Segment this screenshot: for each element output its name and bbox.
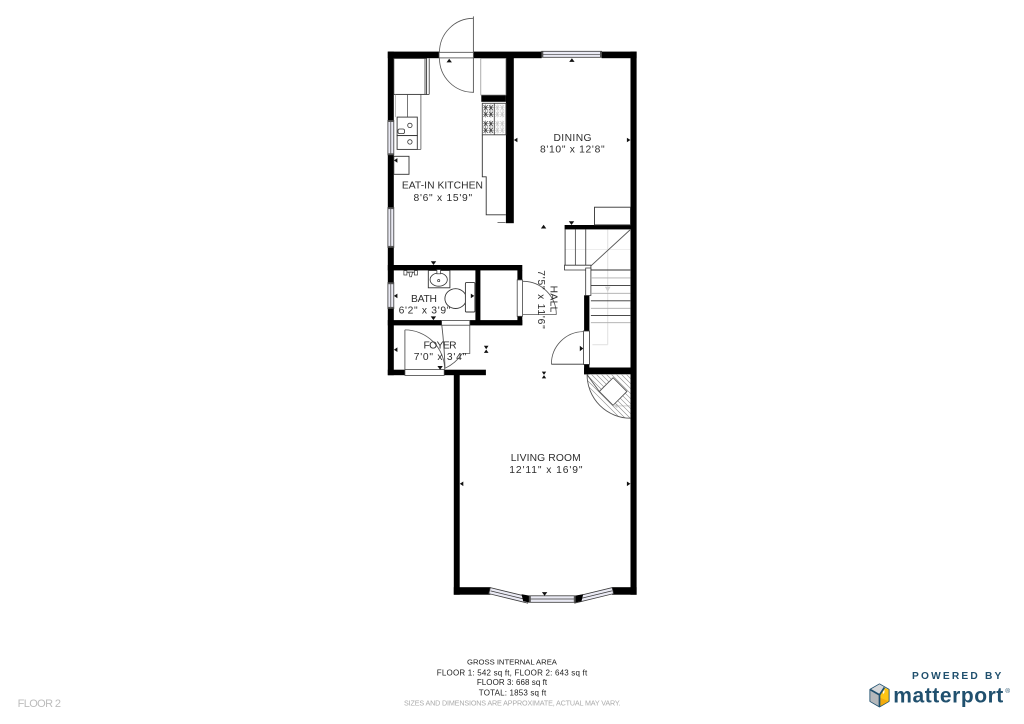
svg-text:GROSS INTERNAL AREA: GROSS INTERNAL AREA (467, 657, 558, 666)
svg-text:SIZES AND DIMENSIONS ARE APPRO: SIZES AND DIMENSIONS ARE APPROXIMATE, AC… (404, 699, 621, 708)
svg-text:FLOOR 2: FLOOR 2 (18, 698, 61, 710)
svg-text:7'5" x 11'6": 7'5" x 11'6" (535, 270, 546, 329)
svg-text:HALL: HALL (547, 286, 558, 313)
svg-text:FLOOR 1: 542 sq ft, FLOOR 2: 6: FLOOR 1: 542 sq ft, FLOOR 2: 643 sq ft (437, 668, 588, 677)
svg-text:EAT-IN KITCHEN: EAT-IN KITCHEN (402, 181, 483, 192)
svg-text:BATH: BATH (411, 294, 437, 305)
svg-text:FOYER: FOYER (423, 340, 456, 351)
svg-text:®: ® (1005, 687, 1010, 695)
svg-text:12'11" x 16'9": 12'11" x 16'9" (509, 465, 583, 476)
svg-text:7'0" x 3'4": 7'0" x 3'4" (414, 352, 467, 363)
svg-text:DINING: DINING (553, 133, 591, 144)
svg-text:LIVING ROOM: LIVING ROOM (511, 453, 581, 464)
svg-text:8'10" x 12'8": 8'10" x 12'8" (540, 144, 605, 155)
svg-text:6'2" x 3'9": 6'2" x 3'9" (399, 305, 451, 316)
svg-text:FLOOR 3: 668 sq ft: FLOOR 3: 668 sq ft (477, 678, 548, 687)
svg-text:8'6" x 15'9": 8'6" x 15'9" (414, 193, 473, 204)
svg-text:TOTAL: 1853 sq ft: TOTAL: 1853 sq ft (479, 689, 547, 698)
svg-text:POWERED BY: POWERED BY (912, 671, 1002, 682)
svg-text:matterport: matterport (893, 685, 1003, 708)
